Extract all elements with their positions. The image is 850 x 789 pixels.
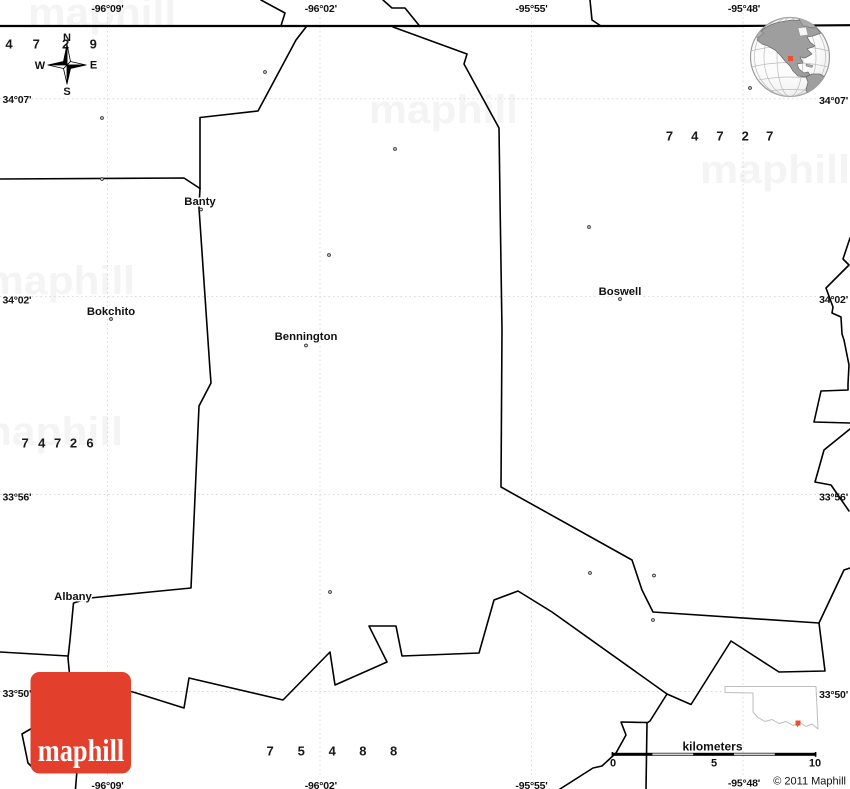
svg-text:33°56': 33°56' xyxy=(3,492,32,504)
svg-text:S: S xyxy=(63,86,70,98)
svg-text:-95°55': -95°55' xyxy=(515,3,547,15)
svg-text:E: E xyxy=(90,60,97,72)
svg-text:N: N xyxy=(63,32,71,44)
svg-text:7: 7 xyxy=(21,436,28,451)
svg-text:6: 6 xyxy=(86,436,93,451)
svg-text:-95°55': -95°55' xyxy=(515,780,547,789)
svg-text:-96°09': -96°09' xyxy=(91,780,123,789)
svg-text:34°07': 34°07' xyxy=(819,95,848,107)
svg-text:33°50': 33°50' xyxy=(3,688,32,700)
svg-text:34°02': 34°02' xyxy=(3,295,32,307)
svg-text:-96°02': -96°02' xyxy=(305,780,337,789)
svg-text:4: 4 xyxy=(38,436,46,451)
svg-text:8: 8 xyxy=(359,744,366,759)
svg-text:7: 7 xyxy=(33,37,40,52)
svg-text:7: 7 xyxy=(54,436,61,451)
svg-text:34°02': 34°02' xyxy=(819,294,848,306)
svg-text:W: W xyxy=(35,60,46,72)
svg-text:maphill: maphill xyxy=(369,88,518,132)
svg-text:© 2011 Maphill: © 2011 Maphill xyxy=(773,776,846,788)
svg-text:0: 0 xyxy=(610,758,616,770)
svg-text:4: 4 xyxy=(5,37,13,52)
svg-text:34°07': 34°07' xyxy=(3,94,32,106)
svg-text:maphill: maphill xyxy=(700,148,850,192)
svg-text:-96°09': -96°09' xyxy=(91,3,123,15)
svg-text:7: 7 xyxy=(666,129,673,144)
svg-text:2: 2 xyxy=(70,436,77,451)
svg-text:kilometers: kilometers xyxy=(682,740,742,754)
svg-text:4: 4 xyxy=(329,744,337,759)
svg-text:4: 4 xyxy=(691,129,699,144)
svg-text:Albany: Albany xyxy=(54,591,92,603)
svg-text:5: 5 xyxy=(298,744,305,759)
svg-text:7: 7 xyxy=(766,129,773,144)
svg-text:maphill: maphill xyxy=(0,410,123,454)
svg-text:maphill: maphill xyxy=(38,732,125,768)
svg-text:10: 10 xyxy=(809,758,821,770)
svg-text:33°56': 33°56' xyxy=(819,492,848,504)
svg-text:8: 8 xyxy=(390,744,397,759)
svg-text:-95°48': -95°48' xyxy=(728,778,760,789)
svg-text:5: 5 xyxy=(711,758,717,770)
svg-text:7: 7 xyxy=(266,744,273,759)
svg-text:9: 9 xyxy=(90,37,97,52)
svg-text:7: 7 xyxy=(716,129,723,144)
svg-text:-96°02': -96°02' xyxy=(305,3,337,15)
svg-text:33°50': 33°50' xyxy=(819,689,848,701)
svg-text:Bennington: Bennington xyxy=(275,331,338,343)
svg-text:2: 2 xyxy=(742,129,749,144)
svg-text:Banty: Banty xyxy=(184,196,216,208)
svg-text:-95°48': -95°48' xyxy=(728,3,760,15)
svg-text:Bokchito: Bokchito xyxy=(87,306,135,318)
svg-text:Boswell: Boswell xyxy=(599,286,642,298)
